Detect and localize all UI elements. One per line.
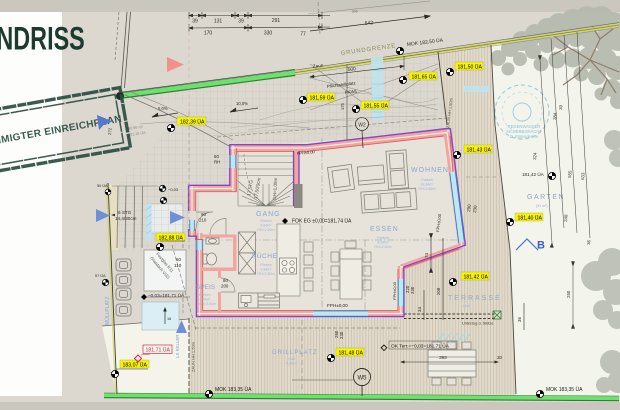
svg-text:MÜLLPLATZ: MÜLLPLATZ bbox=[104, 296, 111, 325]
svg-text:RH=2,60m: RH=2,60m bbox=[199, 302, 216, 306]
svg-text:RH=2,60m: RH=2,60m bbox=[257, 272, 274, 276]
svg-text:LS KELLER: LS KELLER bbox=[175, 335, 180, 358]
svg-text:324: 324 bbox=[532, 152, 538, 160]
svg-text:181,59 ÜA: 181,59 ÜA bbox=[310, 94, 335, 101]
svg-text:80: 80 bbox=[223, 278, 228, 283]
svg-text:4,00m²: 4,00m² bbox=[286, 362, 298, 366]
svg-text:FPH±0,00: FPH±0,00 bbox=[327, 303, 348, 308]
svg-text:2,04m²: 2,04m² bbox=[199, 298, 211, 302]
svg-text:RH: RH bbox=[214, 160, 220, 165]
svg-text:16: 16 bbox=[167, 317, 171, 321]
svg-text:633: 633 bbox=[580, 172, 586, 180]
svg-text:110: 110 bbox=[174, 263, 182, 268]
svg-text:9,84m²: 9,84m² bbox=[260, 268, 272, 272]
svg-text:NDRISS: NDRISS bbox=[0, 20, 85, 57]
svg-text:181,48 ÜA: 181,48 ÜA bbox=[339, 349, 364, 356]
svg-text:60: 60 bbox=[214, 154, 219, 159]
svg-text:181,42 ÜA: 181,42 ÜA bbox=[464, 273, 489, 280]
svg-text:182,39 ÜA: 182,39 ÜA bbox=[180, 118, 205, 125]
svg-text:39: 39 bbox=[238, 19, 244, 25]
svg-text:175: 175 bbox=[340, 102, 345, 110]
svg-text:10,0%: 10,0% bbox=[236, 101, 248, 106]
svg-text:GANG: GANG bbox=[256, 211, 281, 218]
svg-text:Holz: Holz bbox=[288, 357, 295, 361]
svg-text:D. Entenderme: D. Entenderme bbox=[510, 134, 539, 139]
svg-text:181,40 ÜA: 181,40 ÜA bbox=[518, 214, 543, 221]
svg-text:330: 330 bbox=[264, 31, 273, 37]
svg-text:MOK 183,35 ÜA: MOK 183,35 ÜA bbox=[546, 386, 583, 393]
svg-text:W2: W2 bbox=[358, 123, 366, 129]
svg-text:181,71 ÜA: 181,71 ÜA bbox=[146, 347, 171, 354]
svg-text:B: B bbox=[537, 240, 545, 252]
svg-text:230: 230 bbox=[339, 331, 344, 339]
svg-text:210: 210 bbox=[199, 218, 207, 223]
svg-text:MOK 183,35 ÜA: MOK 183,35 ÜA bbox=[215, 386, 252, 393]
svg-text:181,43 ÜA: 181,43 ÜA bbox=[467, 146, 492, 153]
svg-text:ESSEN: ESSEN bbox=[370, 226, 399, 233]
svg-text:OK Terr.=−0,03=181,71 ÜA: OK Terr.=−0,03=181,71 ÜA bbox=[391, 342, 450, 349]
svg-text:20: 20 bbox=[497, 355, 503, 360]
svg-text:384: 384 bbox=[552, 112, 558, 120]
svg-text:50: 50 bbox=[176, 257, 182, 262]
svg-text:230: 230 bbox=[410, 286, 415, 294]
svg-text:542: 542 bbox=[365, 20, 374, 27]
svg-text:291: 291 bbox=[272, 18, 281, 24]
svg-text:290: 290 bbox=[466, 204, 472, 212]
svg-text:34: 34 bbox=[417, 307, 422, 312]
svg-text:FOK EG ±0,00=181,74 ÜA: FOK EG ±0,00=181,74 ÜA bbox=[292, 218, 352, 225]
svg-text:WOHNEN: WOHNEN bbox=[411, 167, 449, 174]
svg-text:38,84m²: 38,84m² bbox=[420, 183, 434, 187]
svg-text:555: 555 bbox=[567, 170, 573, 178]
svg-text:GRILLPLATZ: GRILLPLATZ bbox=[272, 350, 318, 356]
svg-text:181,65 ÜA: 181,65 ÜA bbox=[412, 73, 437, 80]
svg-text:SPEIS: SPEIS bbox=[196, 284, 216, 291]
svg-text:181,50 ÜA: 181,50 ÜA bbox=[458, 63, 483, 70]
svg-text:306: 306 bbox=[352, 9, 358, 14]
svg-text:Fliesen: Fliesen bbox=[260, 263, 272, 267]
svg-text:6 STG: 6 STG bbox=[118, 210, 132, 215]
svg-text:248: 248 bbox=[563, 214, 569, 222]
svg-text:14,4/30cm: 14,4/30cm bbox=[115, 216, 137, 221]
svg-text:50 ÜA: 50 ÜA bbox=[97, 184, 108, 188]
svg-text:W5: W5 bbox=[358, 376, 368, 382]
svg-text:272: 272 bbox=[107, 127, 113, 135]
svg-text:Unterzug ü. Stütze: Unterzug ü. Stütze bbox=[462, 322, 493, 326]
svg-text:RH=2,60m: RH=2,60m bbox=[374, 245, 391, 249]
svg-text:170: 170 bbox=[204, 31, 213, 37]
svg-text:208: 208 bbox=[436, 287, 441, 295]
svg-text:Parkett: Parkett bbox=[377, 236, 388, 240]
svg-text:RH=2,60m: RH=2,60m bbox=[257, 228, 274, 232]
svg-text:5,64m²: 5,64m² bbox=[260, 224, 272, 228]
svg-text:200: 200 bbox=[221, 284, 229, 289]
svg-text:Fliesen: Fliesen bbox=[260, 219, 272, 223]
svg-text:Fliesen: Fliesen bbox=[199, 293, 211, 297]
svg-text:Holz: Holz bbox=[463, 304, 470, 308]
svg-text:GARTEN: GARTEN bbox=[527, 194, 565, 201]
svg-text:36: 36 bbox=[517, 317, 522, 322]
svg-text:90: 90 bbox=[201, 212, 206, 217]
svg-text:250: 250 bbox=[566, 290, 571, 298]
svg-text:181,42 ÜA: 181,42 ÜA bbox=[522, 171, 545, 177]
svg-text:74: 74 bbox=[424, 253, 429, 258]
svg-text:ZAUN HH 1,50m: ZAUN HH 1,50m bbox=[191, 341, 196, 372]
svg-text:(81 m²): (81 m²) bbox=[536, 204, 548, 208]
svg-text:8,39m²: 8,39m² bbox=[377, 241, 389, 245]
svg-text:KÜCHE: KÜCHE bbox=[252, 252, 277, 260]
svg-text:181,55 ÜA: 181,55 ÜA bbox=[364, 102, 389, 109]
svg-text:TERRASSE: TERRASSE bbox=[448, 295, 502, 302]
svg-text:77: 77 bbox=[300, 32, 306, 38]
svg-text:39: 39 bbox=[192, 19, 198, 25]
svg-text:183,07 ÜA: 183,07 ÜA bbox=[123, 361, 148, 368]
svg-text:57 ÜA: 57 ÜA bbox=[95, 274, 106, 278]
svg-text:Parkett: Parkett bbox=[421, 178, 432, 182]
svg-text:−0,03: −0,03 bbox=[168, 187, 179, 192]
svg-text:RH=2,60m: RH=2,60m bbox=[418, 187, 435, 191]
svg-text:500: 500 bbox=[348, 66, 357, 73]
svg-text:230: 230 bbox=[472, 205, 478, 213]
svg-text:131: 131 bbox=[214, 19, 223, 25]
svg-text:393: 393 bbox=[439, 355, 447, 360]
svg-text:182,88 ÜA: 182,88 ÜA bbox=[159, 234, 184, 241]
svg-text:FPH±0,00: FPH±0,00 bbox=[392, 281, 397, 300]
